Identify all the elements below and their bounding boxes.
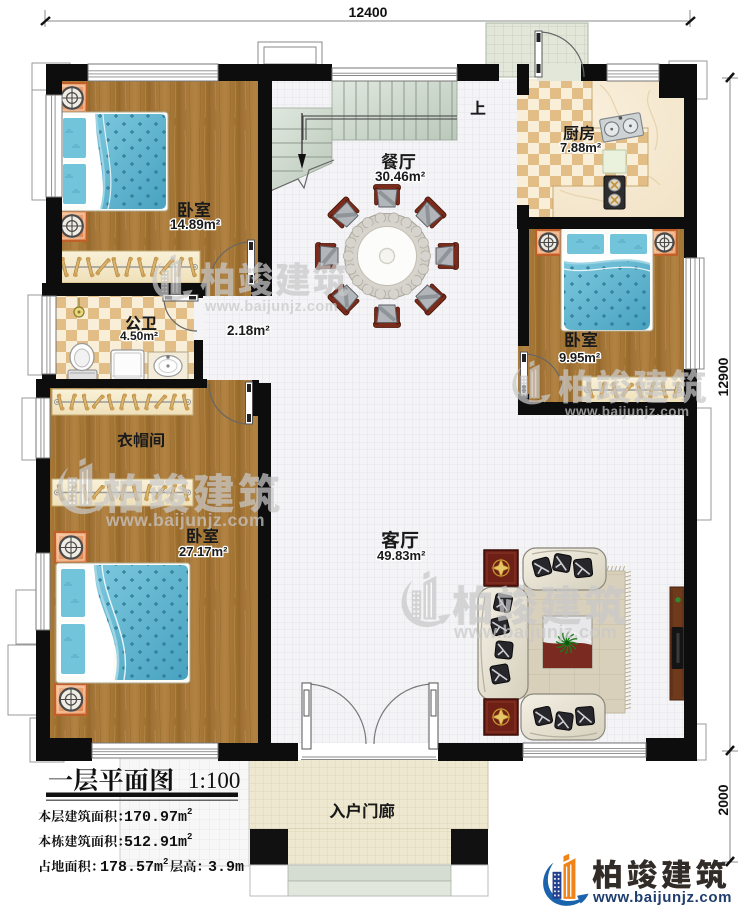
- svg-text:www.baijunjz.com: www.baijunjz.com: [592, 889, 732, 906]
- svg-text:www.baijunjz.com: www.baijunjz.com: [204, 299, 338, 315]
- svg-text:2.18m²: 2.18m²: [227, 323, 270, 338]
- svg-text:27.17m²: 27.17m²: [179, 544, 228, 559]
- svg-text:30.46m²: 30.46m²: [375, 169, 426, 184]
- svg-text:512.91m: 512.91m: [124, 834, 187, 851]
- svg-text:7.88m²: 7.88m²: [560, 140, 602, 155]
- svg-text:www.baijunjz.com: www.baijunjz.com: [105, 510, 265, 530]
- svg-text:4.50m²: 4.50m²: [120, 329, 158, 343]
- svg-text:2: 2: [187, 807, 192, 817]
- svg-text:3.9m: 3.9m: [208, 859, 244, 876]
- svg-text:12400: 12400: [349, 4, 388, 20]
- svg-text:www.baijunjz.com: www.baijunjz.com: [564, 404, 690, 419]
- svg-text:49.83m²: 49.83m²: [377, 548, 426, 563]
- svg-text:12900: 12900: [715, 357, 731, 396]
- svg-text:170.97m: 170.97m: [124, 809, 187, 826]
- svg-text:2: 2: [163, 857, 168, 867]
- svg-text:2000: 2000: [715, 784, 731, 815]
- svg-text:178.57m: 178.57m: [100, 859, 163, 876]
- svg-text:9.95m²: 9.95m²: [559, 350, 601, 365]
- svg-text:www.baijunjz.com: www.baijunjz.com: [453, 622, 617, 642]
- svg-text:1:100: 1:100: [188, 768, 240, 793]
- svg-text:2: 2: [187, 832, 192, 842]
- svg-text:14.89m²: 14.89m²: [170, 217, 221, 232]
